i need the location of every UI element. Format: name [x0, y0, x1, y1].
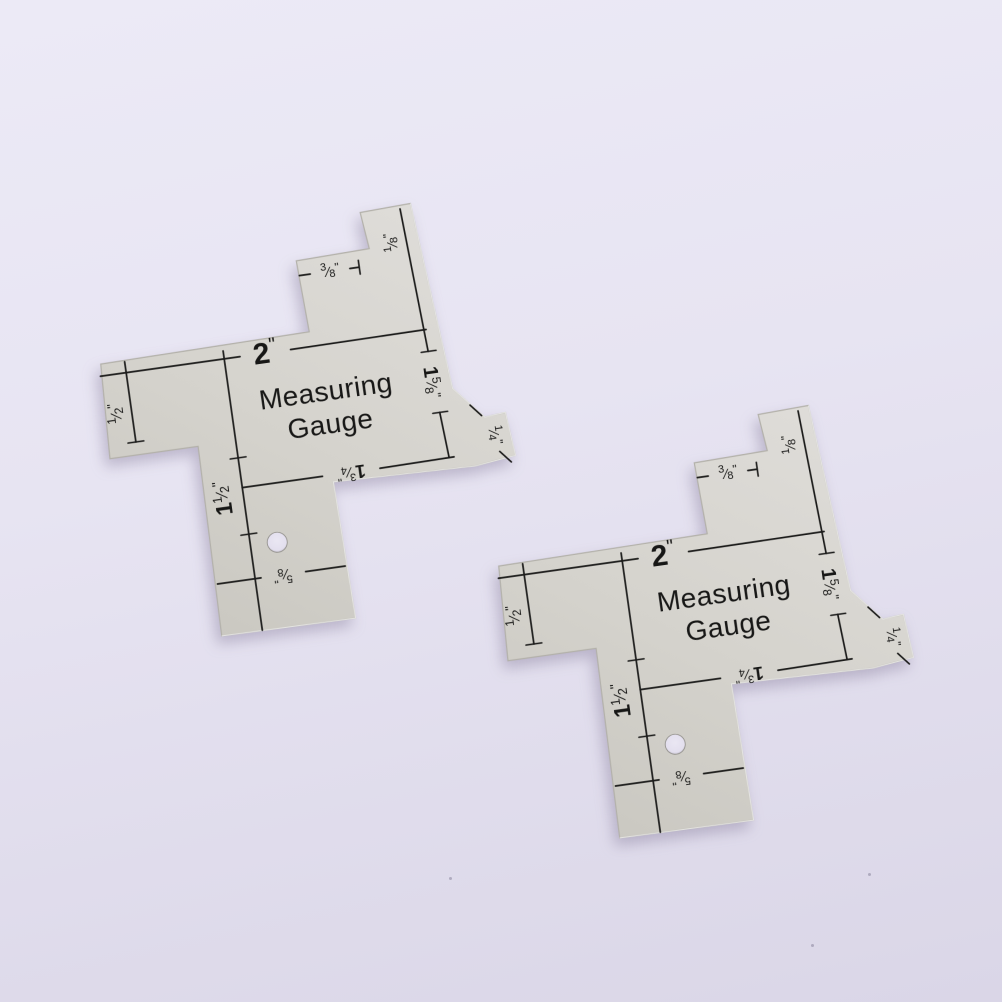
photo-scene: Measuring Gauge 2" 3⁄8" 1⁄8" 15⁄8" 1⁄2" [0, 0, 1002, 1002]
dust-speck [868, 873, 871, 876]
gauge-plate-svg: Measuring Gauge 2" 3⁄8" 1⁄8" 15⁄8" 1⁄2" [78, 191, 551, 655]
measuring-gauge-2: Measuring Gauge 2" 3⁄8" 1⁄8" 15⁄8" 1⁄2" [476, 393, 949, 857]
measuring-gauge-1: Measuring Gauge 2" 3⁄8" 1⁄8" 15⁄8" 1⁄2" [78, 191, 551, 655]
dust-speck [811, 944, 814, 947]
gauge-plate-svg: Measuring Gauge 2" 3⁄8" 1⁄8" 15⁄8" 1⁄2" [476, 393, 949, 857]
dust-speck [449, 877, 452, 880]
